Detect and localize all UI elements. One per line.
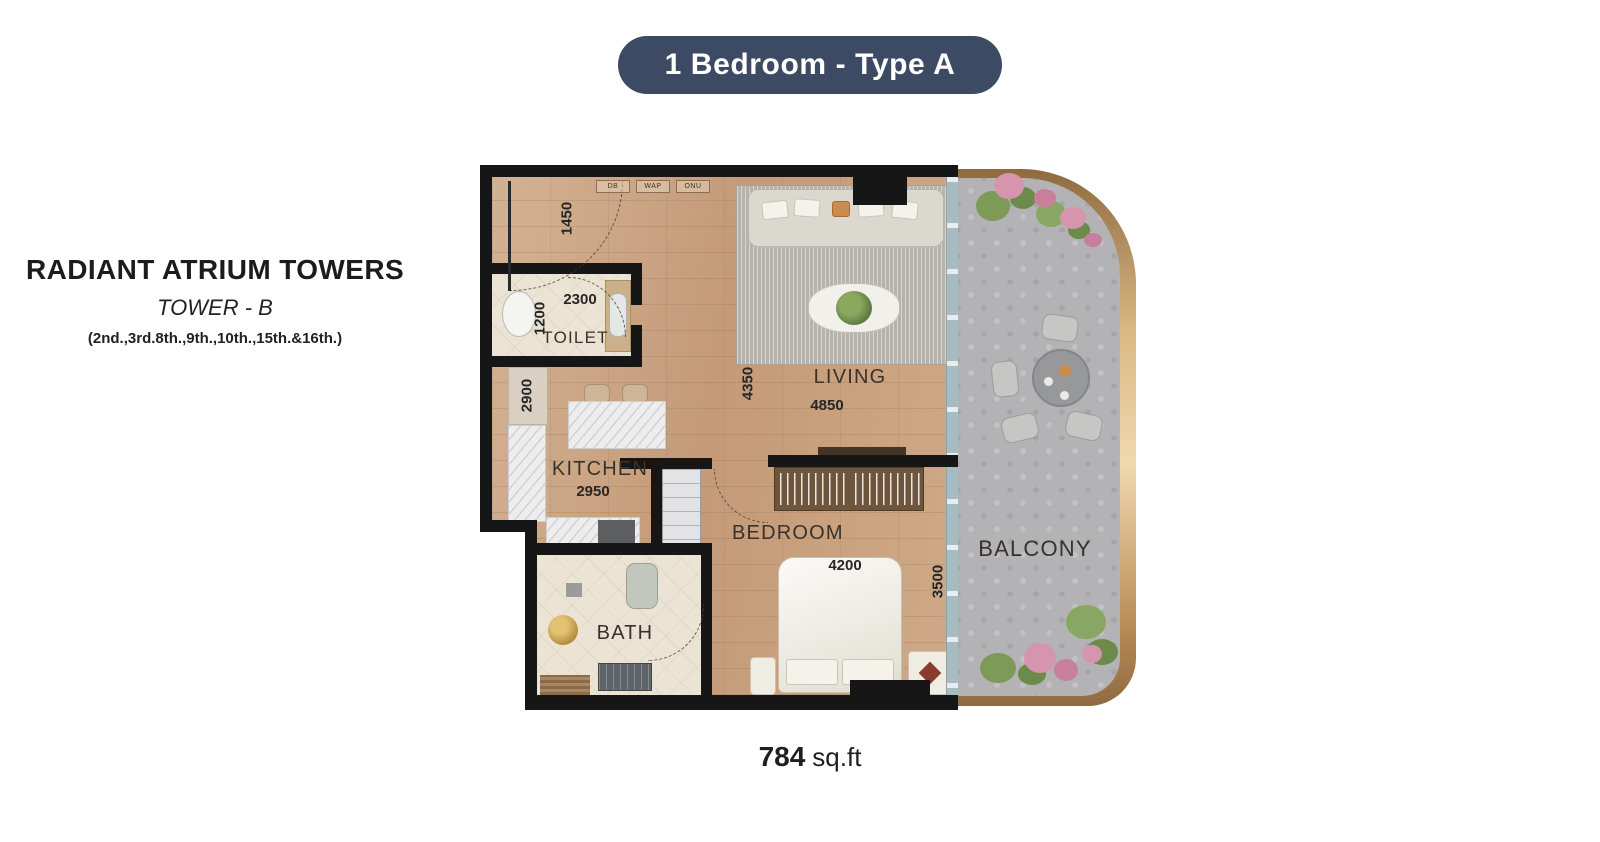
sofa-pillow (832, 201, 850, 217)
wall-toilet-right (631, 263, 642, 305)
floorplan-page: 1 Bedroom - Type A RADIANT ATRIUM TOWERS… (0, 0, 1600, 842)
wall-corridor-v (651, 458, 662, 555)
room-label-living: LIVING (800, 366, 900, 389)
room-label-balcony: BALCONY (975, 536, 1095, 562)
dim-bedroom-3500: 3500 (930, 557, 947, 607)
plan-notch (480, 532, 525, 710)
dim-living-4850: 4850 (802, 397, 852, 414)
kitchen-island (568, 401, 666, 449)
total-area: 784sq.ft (0, 741, 1600, 773)
flowers-top (972, 171, 1112, 261)
project-info: RADIANT ATRIUM TOWERS TOWER - B (2nd.,3r… (0, 254, 430, 347)
wall-toilet-right (631, 325, 642, 367)
floor-levels: (2nd.,3rd.8th.,9th.,10th.,15th.&16th.) (0, 330, 430, 347)
column-bottom (850, 680, 930, 710)
bed-pillow (786, 659, 838, 685)
wall-toilet-bottom (492, 356, 642, 367)
bath-shelf (566, 583, 582, 597)
wall-bath-right (701, 543, 712, 710)
wardrobe (774, 467, 924, 511)
dim-toilet-2300: 2300 (555, 291, 605, 308)
wall-bedroom-top (768, 455, 958, 467)
kitchen-counter-left (508, 425, 546, 522)
dim-entry-1450: 1450 (559, 194, 576, 244)
dim-living-4350: 4350 (740, 359, 757, 409)
column-top (853, 165, 907, 205)
shower (598, 663, 652, 691)
utility-box-onu: ONU (676, 180, 710, 193)
room-label-bath: BATH (590, 622, 660, 645)
dim-bedroom-4200: 4200 (820, 557, 870, 574)
window-wall (946, 177, 958, 695)
balcony-chair (1040, 313, 1079, 344)
flowers-bottom (978, 585, 1123, 693)
tower-name: TOWER - B (0, 295, 430, 321)
bath-wc (626, 563, 658, 609)
utility-box-wap: WAP (636, 180, 670, 193)
utility-box-db: DB (596, 180, 630, 193)
plant-decor (836, 291, 872, 325)
room-label-bedroom: BEDROOM (732, 522, 842, 545)
unit-type-badge: 1 Bedroom - Type A (618, 36, 1002, 94)
bath-sink (548, 615, 578, 645)
project-name: RADIANT ATRIUM TOWERS (0, 254, 430, 286)
unit-type-label: 1 Bedroom - Type A (665, 48, 956, 82)
dim-kitchen-2900: 2900 (519, 371, 536, 421)
fridge-pantry-unit (662, 467, 701, 555)
area-unit: sq.ft (812, 742, 861, 772)
balcony-table (1032, 349, 1090, 407)
dim-toilet-1200: 1200 (532, 294, 549, 344)
wall-left (480, 165, 492, 532)
floor-plan: DB WAP ONU TOILET KITCHEN LIVING BEDROOM… (480, 165, 1138, 710)
nightstand (750, 657, 776, 695)
sofa-pillow (761, 200, 789, 221)
wall-bath-top (525, 543, 712, 555)
room-label-kitchen: KITCHEN (550, 458, 650, 481)
dim-kitchen-2950: 2950 (568, 483, 618, 500)
sofa-pillow (793, 198, 820, 218)
balcony-chair (990, 360, 1020, 399)
area-value: 784 (759, 741, 806, 772)
bath-bench (540, 675, 590, 695)
utility-boxes: DB WAP ONU (596, 180, 710, 193)
